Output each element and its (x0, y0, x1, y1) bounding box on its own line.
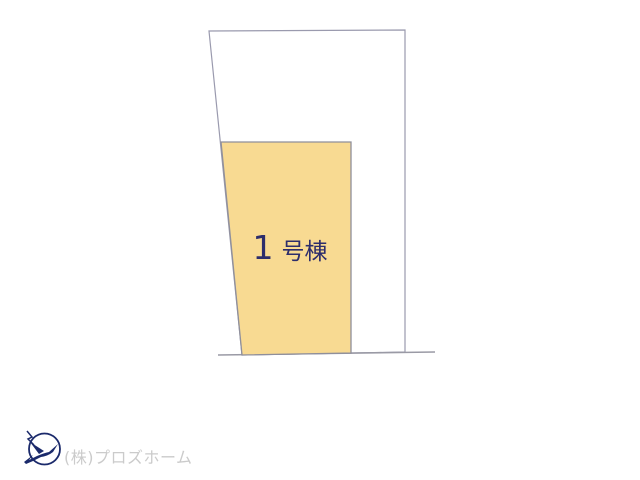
company-name: (株)プロズホーム (64, 448, 193, 469)
lot-suffix: 号棟 (282, 239, 328, 265)
company-footer: (株)プロズホーム (24, 427, 193, 469)
lot-number: 1 (252, 228, 273, 267)
site-plan-canvas: 1 号棟 (株)プロズホーム (0, 0, 640, 480)
site-plan-diagram: 1 号棟 (0, 0, 640, 480)
logo-bird-wing (30, 442, 44, 454)
company-logo-bird-icon (24, 429, 64, 469)
